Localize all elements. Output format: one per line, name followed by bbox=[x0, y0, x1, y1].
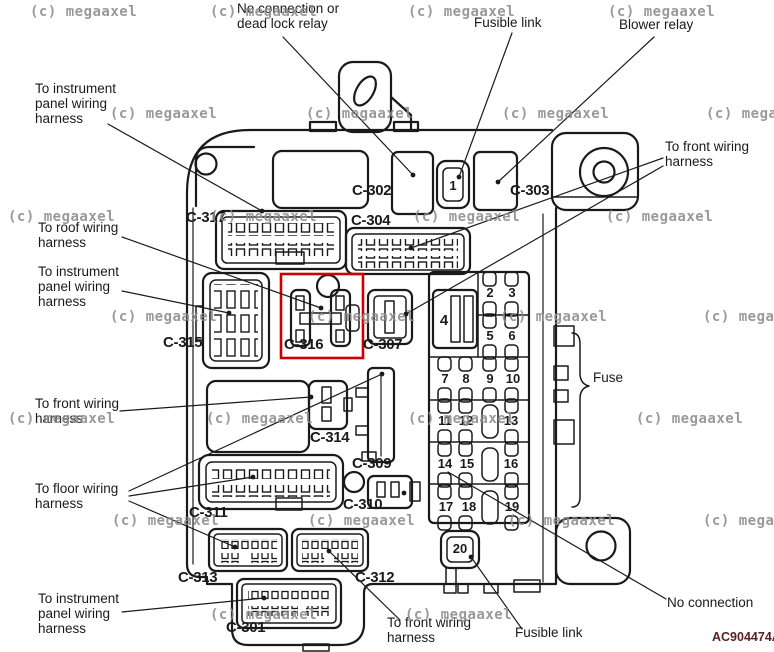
watermark: (c) megaaxel bbox=[502, 106, 609, 122]
callout-no-connection: No connection bbox=[667, 595, 753, 610]
connector-c304 bbox=[346, 228, 470, 274]
connector-c313 bbox=[209, 529, 287, 571]
callout-instrument-bottom: To instrument panel wiring harness bbox=[38, 591, 119, 636]
fuse-number-17: 17 bbox=[439, 499, 453, 514]
watermark: (c) megaaxel bbox=[636, 411, 743, 427]
watermark: (c) megaaxel bbox=[110, 106, 217, 122]
watermark: (c) megaaxel bbox=[210, 209, 317, 225]
junction-block-drawing bbox=[0, 0, 774, 652]
callout-instrument-bottom-line2: panel wiring bbox=[38, 606, 110, 621]
callout-instrument-mid-line2: panel wiring bbox=[38, 279, 110, 294]
watermark: (c) megaaxel bbox=[703, 513, 774, 529]
fuse-number-1: 1 bbox=[449, 178, 456, 193]
label-c316: C-316 bbox=[284, 336, 323, 353]
watermark: (c) megaaxel bbox=[8, 209, 115, 225]
callout-front-right: To front wiring harness bbox=[665, 139, 749, 169]
watermark: (c) megaaxel bbox=[210, 4, 317, 20]
watermark: (c) megaaxel bbox=[500, 309, 607, 325]
callout-front-bottom-line2: harness bbox=[387, 630, 435, 645]
watermark: (c) megaaxel bbox=[606, 209, 713, 225]
callout-instrument-top-line2: panel wiring bbox=[35, 96, 107, 111]
reference-code: AC904474A bbox=[712, 630, 774, 644]
junction-block-diagram-page: No connection or dead lock relay Fusible… bbox=[0, 0, 774, 652]
label-c302: C-302 bbox=[352, 182, 391, 199]
callout-instrument-mid-line1: To instrument bbox=[38, 264, 119, 279]
watermark: (c) megaaxel bbox=[413, 209, 520, 225]
watermark: (c) megaaxel bbox=[508, 513, 615, 529]
callout-floor-line1: To floor wiring bbox=[35, 481, 118, 496]
watermark: (c) megaaxel bbox=[112, 513, 219, 529]
callout-instrument-top-line1: To instrument bbox=[35, 81, 116, 96]
watermark: (c) megaaxel bbox=[308, 309, 415, 325]
watermark: (c) megaaxel bbox=[608, 4, 715, 20]
fuse-number-5: 5 bbox=[486, 328, 493, 343]
watermark: (c) megaaxel bbox=[206, 411, 313, 427]
fuse-number-7: 7 bbox=[441, 371, 448, 386]
callout-instrument-bottom-line3: harness bbox=[38, 621, 86, 636]
relay-slot-blank-top bbox=[273, 151, 368, 208]
fuse-number-9: 9 bbox=[486, 371, 493, 386]
leader-lines bbox=[108, 33, 666, 629]
watermark: (c) megaaxel bbox=[408, 411, 515, 427]
callout-front-left-line1: To front wiring bbox=[35, 396, 119, 411]
callout-fusible-link-bottom: Fusible link bbox=[515, 625, 583, 640]
callout-instrument-mid: To instrument panel wiring harness bbox=[38, 264, 119, 309]
watermark: (c) megaaxel bbox=[306, 106, 413, 122]
callout-fuse: Fuse bbox=[593, 370, 623, 385]
watermark: (c) megaaxel bbox=[210, 607, 317, 623]
fuse-number-16: 16 bbox=[504, 456, 518, 471]
watermark: (c) megaaxel bbox=[30, 4, 137, 20]
round-hole bbox=[344, 472, 364, 492]
fuse-number-19: 19 bbox=[505, 499, 519, 514]
relay-c302-box bbox=[392, 152, 433, 214]
label-c312: C-312 bbox=[355, 569, 394, 586]
watermark: (c) megaaxel bbox=[703, 309, 774, 325]
label-c314: C-314 bbox=[310, 429, 349, 446]
callout-front-right-line2: harness bbox=[665, 154, 713, 169]
watermark: (c) megaaxel bbox=[308, 513, 415, 529]
callout-instrument-top-line3: harness bbox=[35, 111, 83, 126]
fuse-number-2: 2 bbox=[486, 285, 493, 300]
fuse-number-15: 15 bbox=[460, 456, 474, 471]
label-c303: C-303 bbox=[510, 182, 549, 199]
fuse-number-20: 20 bbox=[453, 541, 467, 556]
label-c309: C-309 bbox=[352, 455, 391, 472]
callout-front-right-line1: To front wiring bbox=[665, 139, 749, 154]
fuse-number-14: 14 bbox=[438, 456, 452, 471]
watermark: (c) megaaxel bbox=[405, 607, 512, 623]
callout-floor-line2: harness bbox=[35, 496, 83, 511]
fuse-number-18: 18 bbox=[462, 499, 476, 514]
fuse-number-6: 6 bbox=[508, 328, 515, 343]
callout-roof-line2: harness bbox=[38, 235, 86, 250]
fuse-number-8: 8 bbox=[462, 371, 469, 386]
connector-c309 bbox=[356, 368, 394, 462]
fuse-number-3: 3 bbox=[508, 285, 515, 300]
watermark: (c) megaaxel bbox=[706, 106, 774, 122]
watermark: (c) megaaxel bbox=[110, 309, 217, 325]
watermark: (c) megaaxel bbox=[408, 4, 515, 20]
label-c315: C-315 bbox=[163, 334, 202, 351]
callout-instrument-bottom-line1: To instrument bbox=[38, 591, 119, 606]
fuse-number-4: 4 bbox=[440, 312, 448, 329]
label-c313: C-313 bbox=[178, 569, 217, 586]
callout-instrument-mid-line3: harness bbox=[38, 294, 86, 309]
label-c310: C-310 bbox=[343, 496, 382, 513]
watermark: (c) megaaxel bbox=[8, 411, 115, 427]
callout-instrument-top: To instrument panel wiring harness bbox=[35, 81, 116, 126]
callout-floor: To floor wiring harness bbox=[35, 481, 118, 511]
relay-c303-box bbox=[474, 152, 517, 210]
label-c304: C-304 bbox=[351, 212, 390, 229]
label-c307: C-307 bbox=[363, 336, 402, 353]
fuse-number-10: 10 bbox=[506, 371, 520, 386]
